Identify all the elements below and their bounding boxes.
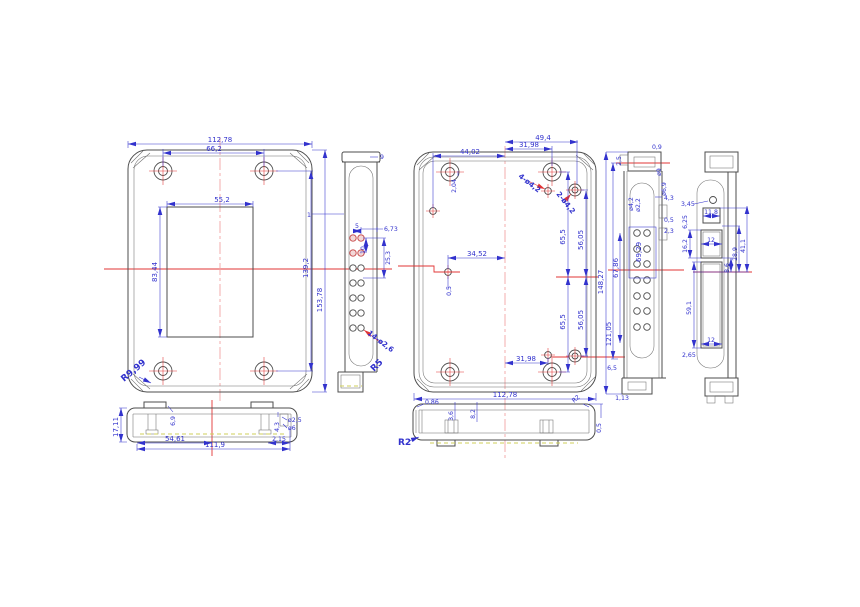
dim-rear-mid-offset: 0,5: [446, 286, 453, 296]
dim-bleft-dia-b: ø6: [288, 425, 296, 432]
bottom-center-outline: [413, 404, 595, 446]
dim-bcenter-rib-b: 8,2: [470, 409, 477, 419]
side-outline: [697, 152, 738, 403]
dim-side-slot2-width: 12: [707, 237, 715, 244]
dim-rsec-dia-c: ø4,2: [628, 197, 635, 211]
front-window: [167, 207, 253, 337]
dim-rear-hole-note-a: 4-ø4,2: [517, 171, 543, 194]
bottom-left-dimensions: 17,11 6,9 4,3 ø2,5 ø6 54,61 111,9 2,15: [112, 0, 548, 451]
dim-rear-overall-width: 112,78: [493, 391, 518, 399]
dim-bleft-edge: 2,15: [272, 436, 286, 443]
dim-rsec-group-width: 69,29: [635, 242, 643, 262]
dim-front-overall-height: 153,78: [316, 288, 324, 313]
dim-side-gap: 8,6: [724, 263, 731, 273]
dim-front-window-width: 55,2: [214, 196, 230, 204]
cad-drawing-canvas: 112,78 66,2 55,2 83,44 139,2 153,78 R9,9…: [0, 0, 860, 607]
rear-view: 44,02 31,98 49,4 2,04 4-ø4,2 2-ø4,2 34,5…: [398, 134, 596, 401]
bottom-center-view: 0,86 3,6 8,2 R2 R2 0,5: [398, 394, 603, 448]
dim-side-span-b: 28,9: [732, 247, 739, 261]
dim-left-group-height: 25,3: [385, 251, 392, 265]
right-section-outline: [620, 152, 667, 394]
dim-bleft-tab: 6,9: [170, 416, 177, 426]
dim-bcenter-corner: R2: [571, 394, 582, 405]
dim-bleft-step: 4,3: [274, 422, 281, 432]
side-dimensions: 3,45 6,25 11,8 16,2 12 41,1 28,9 8,6 59,…: [681, 201, 749, 359]
side-view: 3,45 6,25 11,8 16,2 12 41,1 28,9 8,6 59,…: [681, 152, 749, 403]
dim-bcenter-edge: 0,86: [425, 399, 439, 406]
dim-rsec-cap-width: 2,5: [616, 156, 623, 166]
dim-front-hole-span: 139,2: [302, 258, 310, 278]
reference-lines: [104, 137, 752, 460]
dim-front-window-height: 83,44: [151, 261, 159, 282]
dim-bleft-overall-width: 111,9: [205, 441, 225, 449]
dim-side-slot1-width: 11,8: [704, 209, 718, 216]
dim-left-cap: 9: [380, 154, 384, 161]
dim-front-overall-width: 112,78: [208, 136, 233, 144]
dim-rear-lower-b: 56,05: [577, 310, 585, 330]
dim-rear-upper-b: 56,05: [577, 230, 585, 250]
dim-rsec-cap-lip: 0,9: [652, 144, 662, 151]
dim-bleft-half-width: 54,61: [165, 435, 185, 443]
dim-side-bottom-gap: 2,65: [682, 352, 696, 359]
dim-side-slot2-height: 16,2: [682, 239, 689, 253]
dim-rsec-overall-height: 148,27: [597, 270, 605, 295]
dim-rear-width-a: 44,02: [460, 148, 480, 156]
bottom-left-view: 17,11 6,9 4,3 ø2,5 ø6 54,61 111,9 2,15: [112, 0, 548, 451]
dim-bleft-height: 17,11: [112, 417, 120, 437]
dim-left-pitch-y: 10: [360, 246, 367, 254]
dim-rsec-inner-height: 121,05: [605, 322, 613, 347]
dim-rsec-foot-lip: 1,13: [615, 395, 629, 402]
dim-side-slot3-width: 12: [707, 337, 715, 344]
dim-left-edge-offset: 6,73: [384, 226, 398, 233]
right-section-view: 148,27 121,05 67,86 69,29 2,5 0,9 ø9 ø6,…: [597, 144, 674, 402]
left-section-outline: [338, 152, 380, 392]
dim-side-hole-note: 3,45: [681, 201, 695, 208]
dim-rsec-foot-offset: 6,5: [607, 365, 617, 372]
dim-bcenter-lip: 0,5: [596, 423, 603, 433]
dim-front-hole-spacing: 66,2: [206, 145, 222, 153]
dim-bleft-dia-a: ø2,5: [288, 417, 302, 424]
front-view: 112,78 66,2 55,2 83,44 139,2 153,78 R9,9…: [120, 136, 327, 392]
left-section-view: 1 9 5 6,73 10 25,3 14-ø2,6 R5: [307, 152, 398, 392]
dim-rsec-hole-span: 67,86: [612, 257, 620, 278]
dim-rear-width-bottom: 31,98: [516, 355, 536, 363]
front-dimensions: 112,78 66,2 55,2 83,44 139,2 153,78 R9,9…: [120, 136, 327, 392]
dim-rear-boss-offset: 2,04: [451, 179, 458, 193]
dim-rsec-offset-b: 0,5: [664, 217, 674, 224]
dim-bcenter-rib-a: 3,6: [448, 411, 455, 421]
dim-rsec-dia-a: ø9: [656, 168, 663, 176]
dim-side-top-gap: 6,25: [682, 215, 689, 229]
dim-rear-mid-width: 34,52: [467, 250, 487, 258]
dim-side-span-a: 41,1: [740, 239, 747, 253]
left-section-dimensions: 1 9 5 6,73 10 25,3 14-ø2,6 R5: [307, 154, 398, 374]
dim-left-pitch-x: 5: [355, 223, 359, 230]
dim-left-wall: 1: [307, 212, 311, 219]
front-screw-bosses: [149, 157, 278, 385]
dim-rear-lower-a: 65,5: [559, 314, 567, 330]
dim-side-slot3-height: 59,1: [686, 301, 693, 315]
dim-rsec-offset-c: 2,3: [664, 228, 674, 235]
dim-rsec-offset-a: 4,3: [664, 195, 674, 202]
dim-bcenter-radius: R2: [398, 438, 411, 448]
dim-left-hole-note: 14-ø2,6: [366, 328, 396, 354]
dim-rear-width-c: 49,4: [535, 134, 551, 142]
dim-rsec-dia-b: ø6,9: [661, 182, 668, 196]
dim-rear-upper-a: 65,5: [559, 229, 567, 245]
dim-rsec-dia-d: ø2,2: [635, 198, 642, 212]
